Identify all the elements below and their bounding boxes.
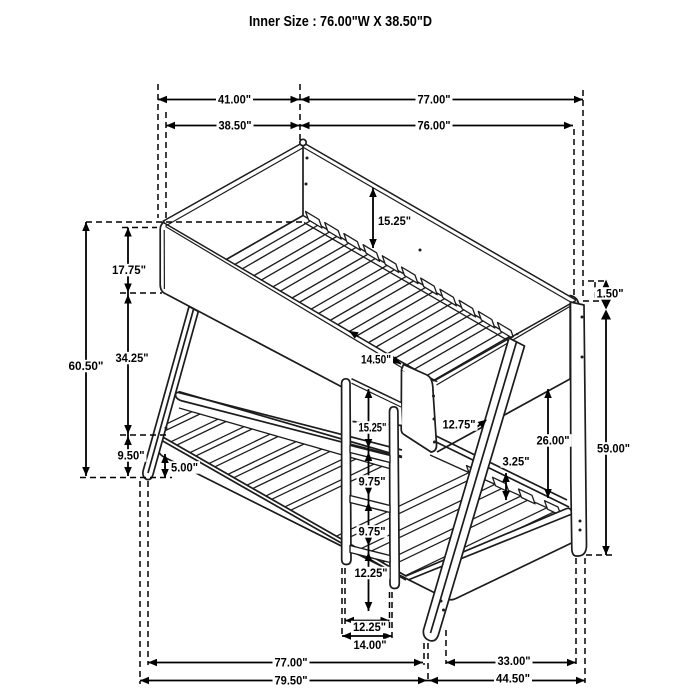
svg-text:Inner Size : 76.00"W X 38.50": Inner Size : 76.00"W X 38.50"D <box>249 14 432 30</box>
svg-text:3.25": 3.25" <box>503 455 530 469</box>
svg-text:26.00": 26.00" <box>537 434 570 448</box>
svg-text:14.00": 14.00" <box>354 638 387 652</box>
svg-text:9.75": 9.75" <box>359 525 386 539</box>
svg-text:1.50": 1.50" <box>597 287 624 301</box>
svg-text:33.00": 33.00" <box>498 654 531 668</box>
svg-text:9.50": 9.50" <box>118 449 145 463</box>
svg-text:38.50": 38.50" <box>219 119 252 133</box>
svg-text:59.00": 59.00" <box>597 442 630 456</box>
svg-text:12.25": 12.25" <box>355 566 388 580</box>
svg-text:14.50": 14.50" <box>361 353 391 367</box>
svg-text:12.75": 12.75" <box>443 418 476 432</box>
svg-text:60.50": 60.50" <box>69 359 104 373</box>
svg-text:5.00": 5.00" <box>171 461 198 475</box>
svg-text:9.75": 9.75" <box>359 475 386 489</box>
svg-text:15.25": 15.25" <box>378 214 411 228</box>
svg-text:41.00": 41.00" <box>218 93 251 107</box>
svg-text:34.25": 34.25" <box>116 351 149 365</box>
svg-text:15.25": 15.25" <box>359 421 387 435</box>
svg-text:77.00": 77.00" <box>418 93 451 107</box>
svg-text:17.75": 17.75" <box>112 263 146 277</box>
svg-text:77.00": 77.00" <box>275 656 308 670</box>
svg-text:44.50": 44.50" <box>496 672 530 686</box>
svg-text:76.00": 76.00" <box>418 119 451 133</box>
svg-text:79.50": 79.50" <box>275 674 308 688</box>
svg-text:12.25": 12.25" <box>353 620 386 634</box>
